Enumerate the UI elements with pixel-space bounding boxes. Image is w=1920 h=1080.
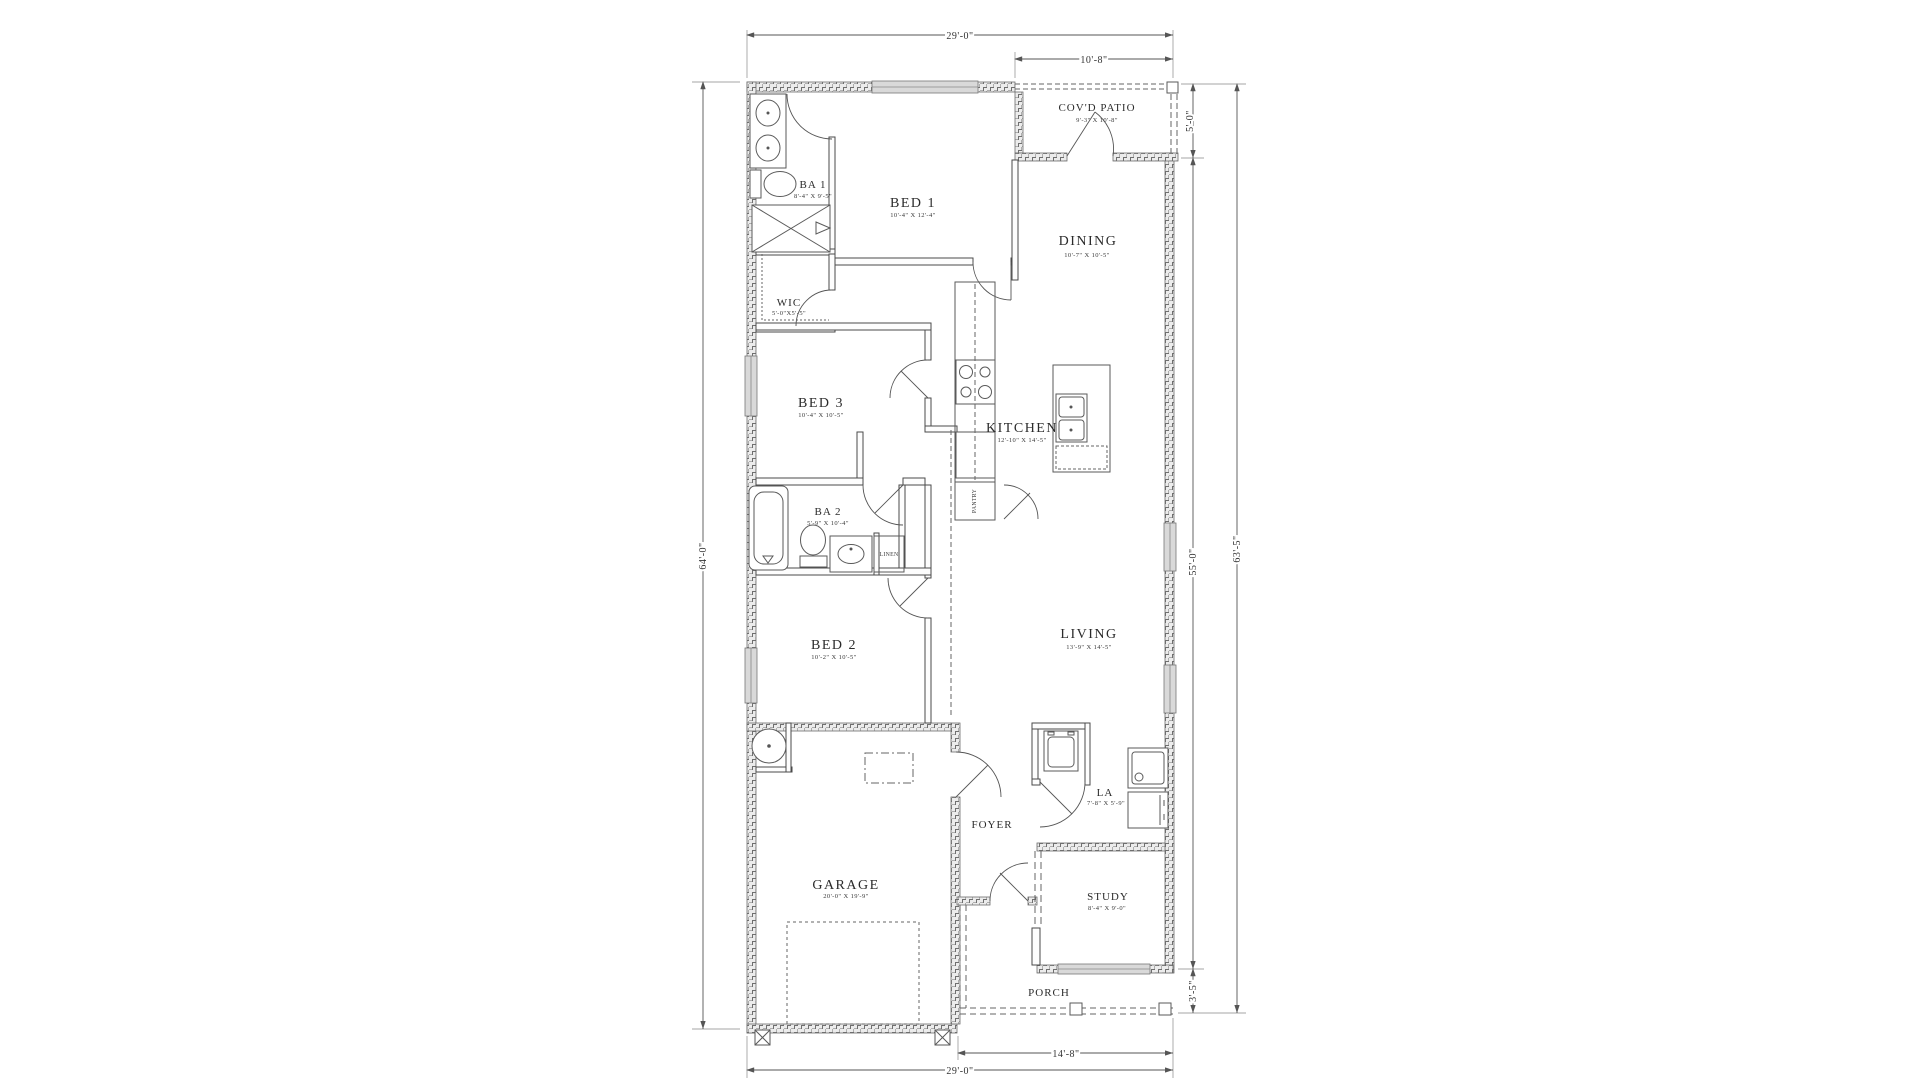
bed1-label: BED 1 — [890, 196, 936, 211]
dining-size: 10'-7" X 10'-5" — [1064, 252, 1109, 259]
ba2-toilet-icon — [801, 525, 826, 555]
dim-top-label: 29'-0" — [946, 31, 973, 42]
garage-label: GARAGE — [812, 878, 879, 893]
ba2-toilet-tank — [800, 556, 827, 567]
dim-patio-w-label: 10'-8" — [1080, 55, 1107, 66]
kitchen-label: KITCHEN — [986, 421, 1058, 436]
patio-size: 9'-3" X 10'-8" — [1076, 117, 1118, 124]
dim-right-porch-label: 3'-5" — [1188, 980, 1199, 1002]
bed3-size: 10'-4" X 10'-5" — [798, 412, 843, 419]
porch-label: PORCH — [1028, 987, 1070, 999]
dim-left-total-label: 64'-0" — [698, 542, 709, 569]
porch-post-icon — [1070, 1003, 1082, 1015]
wic-label: WIC — [777, 297, 801, 309]
living-size: 13'-9" X 14'-5" — [1066, 644, 1111, 651]
ba1-size: 8'-4" X 9'-5" — [794, 193, 832, 200]
dim-bottom-porch-label: 14'-8" — [1052, 1049, 1079, 1060]
bed1-size: 10'-4" X 12'-4" — [890, 212, 935, 219]
ba1-toilet-tank — [750, 170, 761, 198]
linen-label: LINEN — [880, 552, 899, 558]
dining-label: DINING — [1059, 234, 1118, 249]
laundry-label: LA — [1097, 787, 1114, 799]
patio-label: COV'D PATIO — [1058, 102, 1135, 114]
ba2-size: 5'-9" X 10'-4" — [807, 520, 849, 527]
bed3-label: BED 3 — [798, 396, 844, 411]
ba2-vanity — [830, 536, 872, 572]
post-icon-right — [935, 1030, 950, 1045]
kitchen-island — [1053, 365, 1110, 472]
water-heater-icon — [1128, 748, 1168, 788]
living-label: LIVING — [1060, 627, 1117, 642]
wic-size: 5'-0"X5'-5" — [772, 310, 806, 317]
ba1-toilet-icon — [764, 172, 796, 197]
ba1-vanity — [750, 94, 786, 168]
dim-patio-d-label: 5'-0" — [1185, 110, 1196, 132]
bed2-label: BED 2 — [811, 638, 857, 653]
garage-size: 20'-0" X 19'-9" — [823, 893, 868, 900]
dim-right-main-label: 55'-0" — [1188, 548, 1199, 575]
floor-plan-drawing: COV'D PATIO 9'-3" X 10'-8" BA 1 8'-4" X … — [0, 0, 1920, 1080]
study-size: 8'-4" X 9'-0" — [1088, 905, 1126, 912]
pantry-label: PANTRY — [972, 488, 978, 513]
ba1-label: BA 1 — [800, 179, 827, 191]
patio-post-icon — [1167, 82, 1178, 93]
dim-bottom-label: 29'-0" — [946, 1066, 973, 1077]
foyer-label: FOYER — [971, 819, 1012, 831]
bed2-size: 10'-2" X 10'-5" — [811, 654, 856, 661]
dim-right-total-label: 63'-5" — [1232, 535, 1243, 562]
post-icon-left — [755, 1030, 770, 1045]
laundry-size: 7'-8" X 5'-9" — [1087, 800, 1125, 807]
kitchen-size: 12'-10" X 14'-5" — [997, 437, 1046, 444]
hvac-icon — [1128, 792, 1168, 828]
ba2-label: BA 2 — [815, 506, 842, 518]
porch-post2-icon — [1159, 1003, 1171, 1015]
study-label: STUDY — [1087, 891, 1129, 903]
